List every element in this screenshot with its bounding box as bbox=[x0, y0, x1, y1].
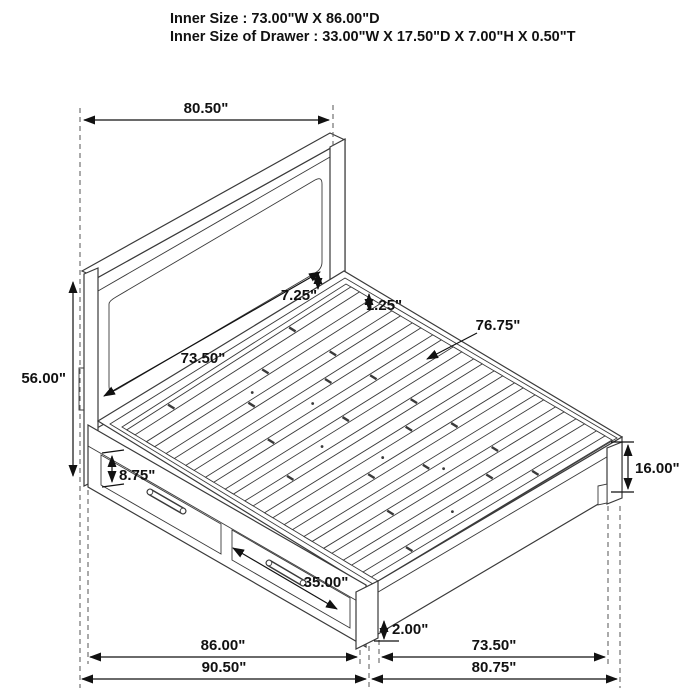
handle-mount-cap bbox=[266, 560, 272, 566]
dimension-diagram: Inner Size : 73.00"W X 86.00"D Inner Siz… bbox=[0, 0, 700, 700]
slat-screw-dot bbox=[321, 445, 324, 448]
dim-slat-length: 76.75" bbox=[476, 317, 521, 334]
dim-footboard-overall-width: 80.75" bbox=[472, 659, 517, 676]
dim-drawer-height: 8.75" bbox=[119, 467, 155, 484]
dim-overall-depth: 90.50" bbox=[202, 659, 247, 676]
dim-headboard-width: 80.50" bbox=[184, 100, 229, 117]
slat-screw-dot bbox=[442, 467, 445, 470]
slat-screw-dot bbox=[311, 402, 314, 405]
inner-size-title: Inner Size : 73.00"W X 86.00"D bbox=[170, 11, 380, 27]
drawer-inner-size-title: Inner Size of Drawer : 33.00"W X 17.50"D… bbox=[170, 29, 576, 45]
handle-mount-cap bbox=[180, 508, 186, 514]
dim-footboard-height: 16.00" bbox=[635, 460, 680, 477]
slat-screw-dot bbox=[381, 456, 384, 459]
dim-footboard-inner-width: 73.50" bbox=[472, 637, 517, 654]
dim-headboard-inner-width: 73.50" bbox=[181, 350, 226, 367]
dim-panel-gap: 7.25" bbox=[281, 287, 317, 304]
dim-headboard-height: 56.00" bbox=[21, 370, 66, 387]
handle-mount-cap bbox=[147, 489, 153, 495]
front-corner-leg bbox=[356, 581, 378, 649]
dim-drawer-width: 35.00" bbox=[304, 574, 349, 591]
dim-ground-clearance: 2.00" bbox=[392, 621, 428, 638]
right-corner-leg bbox=[607, 442, 622, 504]
slat-screw-dot bbox=[251, 391, 254, 394]
bed-dimension-drawing: Inner Size : 73.00"W X 86.00"D Inner Siz… bbox=[0, 0, 700, 700]
dim-side-inner-depth: 86.00" bbox=[201, 637, 246, 654]
right-leg-foot-step bbox=[598, 484, 607, 505]
dim-slat-thickness: 1.25" bbox=[366, 297, 402, 314]
slat-screw-dot bbox=[451, 510, 454, 513]
